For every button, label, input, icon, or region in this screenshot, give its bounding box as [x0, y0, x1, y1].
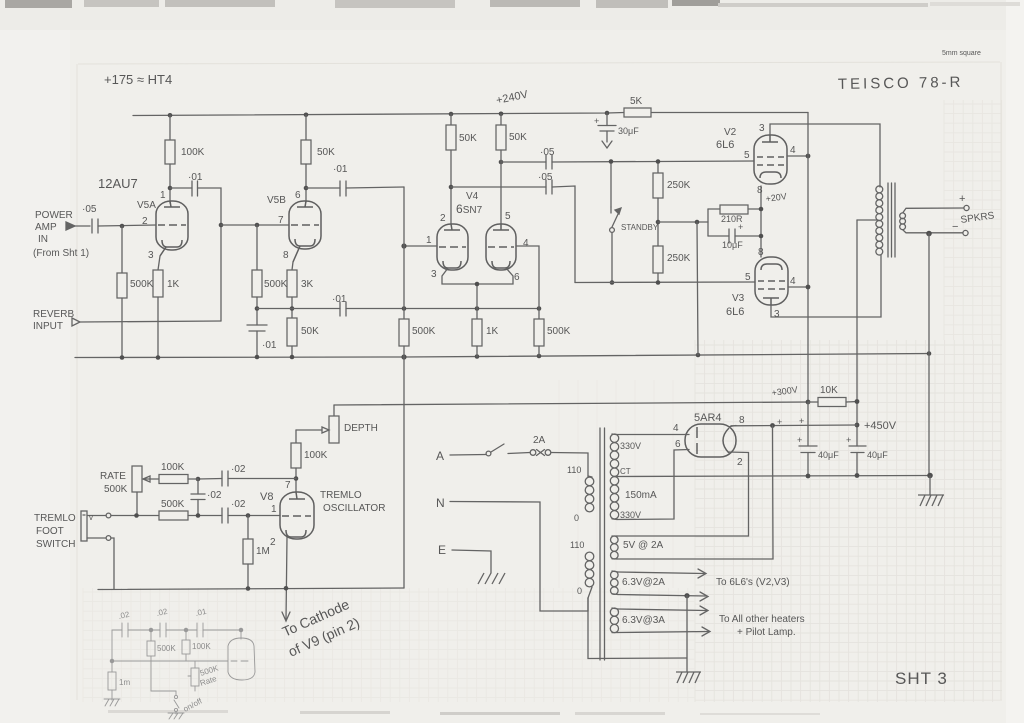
svg-text:DEPTH: DEPTH: [344, 423, 378, 434]
svg-text:40μF: 40μF: [867, 450, 888, 460]
svg-text:2: 2: [270, 537, 276, 548]
svg-text:STANDBY: STANDBY: [621, 223, 659, 232]
svg-text:TEISCO 78-R: TEISCO 78-R: [838, 74, 964, 93]
svg-text:V3: V3: [732, 293, 745, 304]
svg-text:2: 2: [440, 213, 446, 224]
svg-text:OSCILLATOR: OSCILLATOR: [323, 503, 385, 514]
svg-text:1M: 1M: [256, 546, 270, 557]
svg-text:2: 2: [737, 457, 743, 468]
svg-text:TREMLO: TREMLO: [34, 513, 76, 524]
svg-text:+: +: [799, 416, 804, 426]
svg-text:CT: CT: [620, 467, 631, 476]
svg-text:500K: 500K: [547, 326, 571, 337]
svg-text:6.3V@2A: 6.3V@2A: [622, 577, 665, 588]
svg-text:2A: 2A: [533, 435, 546, 446]
svg-text:3K: 3K: [301, 279, 314, 290]
svg-text:+175 ≈ HT4: +175 ≈ HT4: [104, 72, 172, 87]
svg-text:3: 3: [774, 309, 780, 320]
svg-text:50K: 50K: [459, 133, 477, 144]
svg-text:·05: ·05: [82, 204, 97, 215]
svg-text:+450V: +450V: [864, 420, 897, 432]
svg-text:POWER: POWER: [35, 210, 73, 221]
svg-text:V8: V8: [260, 491, 273, 503]
svg-text:A: A: [436, 449, 444, 463]
svg-text:+: +: [594, 116, 599, 126]
svg-text:(From Sht 1): (From Sht 1): [33, 248, 89, 259]
svg-text:4: 4: [523, 238, 529, 249]
svg-text:8: 8: [758, 247, 764, 258]
svg-text:330V: 330V: [620, 510, 641, 520]
svg-text:30μF: 30μF: [618, 126, 639, 136]
svg-text:6: 6: [295, 190, 301, 201]
svg-text:·01: ·01: [188, 172, 203, 183]
svg-text:V4: V4: [466, 191, 479, 202]
svg-text:330V: 330V: [620, 441, 641, 451]
svg-text:+ Pilot Lamp.: + Pilot Lamp.: [737, 627, 796, 638]
svg-text:100K: 100K: [161, 462, 185, 473]
svg-text:To All other heaters: To All other heaters: [719, 614, 805, 625]
svg-text:1m: 1m: [119, 678, 130, 687]
svg-text:5K: 5K: [630, 96, 643, 107]
svg-text:3: 3: [431, 269, 437, 280]
svg-text:5V @ 2A: 5V @ 2A: [623, 540, 664, 551]
svg-text:v: v: [89, 513, 93, 522]
svg-text:1K: 1K: [167, 279, 180, 290]
svg-text:1: 1: [160, 190, 166, 201]
svg-text:4: 4: [673, 423, 679, 434]
svg-text:IN: IN: [38, 234, 48, 245]
svg-text:V5A: V5A: [137, 200, 156, 211]
svg-text:5AR4: 5AR4: [694, 412, 722, 424]
svg-text:500K: 500K: [157, 644, 176, 653]
svg-text:100K: 100K: [304, 450, 328, 461]
svg-text:6.3V@3A: 6.3V@3A: [622, 615, 665, 626]
svg-text:5: 5: [505, 211, 511, 222]
svg-text:10μF: 10μF: [722, 240, 743, 250]
svg-text:500K: 500K: [161, 499, 185, 510]
svg-text:SWITCH: SWITCH: [36, 539, 75, 550]
svg-text:110: 110: [567, 465, 581, 475]
svg-text:40μF: 40μF: [818, 450, 839, 460]
svg-text:100K: 100K: [181, 147, 205, 158]
svg-text:·05: ·05: [538, 172, 553, 183]
svg-text:250K: 250K: [667, 180, 691, 191]
svg-text:+: +: [846, 435, 851, 445]
svg-text:500K: 500K: [130, 279, 154, 290]
svg-text:5: 5: [745, 272, 751, 283]
svg-text:5mm square: 5mm square: [942, 50, 981, 57]
svg-text:50K: 50K: [509, 132, 527, 143]
svg-text:RATE: RATE: [100, 471, 126, 482]
svg-text:500K: 500K: [104, 484, 128, 495]
svg-text:·01: ·01: [262, 340, 277, 351]
svg-text:+: +: [738, 222, 743, 232]
svg-text:4: 4: [790, 145, 796, 156]
svg-text:SHT 3: SHT 3: [895, 669, 948, 688]
svg-text:500K: 500K: [264, 279, 288, 290]
svg-text:50K: 50K: [301, 326, 319, 337]
svg-text:8: 8: [757, 185, 763, 196]
svg-text:100K: 100K: [192, 642, 211, 651]
svg-text:1: 1: [426, 235, 432, 246]
svg-text:50K: 50K: [317, 147, 335, 158]
svg-text:8: 8: [739, 415, 745, 426]
svg-text:INPUT: INPUT: [33, 321, 63, 332]
svg-text:V2: V2: [724, 127, 737, 138]
svg-text:·02: ·02: [231, 499, 246, 510]
svg-text:−: −: [952, 221, 958, 233]
svg-text:REVERB: REVERB: [33, 309, 74, 320]
svg-text:·02: ·02: [207, 490, 222, 501]
svg-text:TREMLO: TREMLO: [320, 490, 362, 501]
svg-text:250K: 250K: [667, 253, 691, 264]
svg-text:1: 1: [271, 504, 277, 515]
svg-text:8: 8: [283, 250, 289, 261]
svg-text:V5B: V5B: [267, 195, 286, 206]
svg-text:+: +: [797, 435, 802, 445]
svg-text:3: 3: [759, 123, 765, 134]
svg-text:·01: ·01: [332, 294, 347, 305]
svg-text:4: 4: [790, 276, 796, 287]
svg-text:110: 110: [570, 540, 584, 550]
svg-text:150mA: 150mA: [625, 490, 657, 501]
svg-text:To 6L6's (V2,V3): To 6L6's (V2,V3): [716, 577, 790, 588]
svg-text:AMP: AMP: [35, 222, 57, 233]
svg-text:·05: ·05: [540, 147, 555, 158]
svg-text:6L6: 6L6: [726, 306, 744, 318]
svg-text:E: E: [438, 543, 446, 557]
svg-text:6: 6: [514, 272, 520, 283]
svg-text:6L6: 6L6: [716, 139, 734, 151]
svg-text:7: 7: [285, 480, 291, 491]
svg-text:N: N: [436, 496, 445, 510]
svg-text:500K: 500K: [412, 326, 436, 337]
svg-text:FOOT: FOOT: [36, 526, 64, 537]
svg-text:0: 0: [574, 513, 579, 523]
svg-text:·02: ·02: [231, 464, 246, 475]
svg-text:·01: ·01: [333, 164, 348, 175]
svg-text:+: +: [959, 193, 965, 205]
svg-text:3: 3: [148, 250, 154, 261]
svg-text:10K: 10K: [820, 385, 838, 396]
svg-text:5: 5: [744, 150, 750, 161]
svg-text:6: 6: [675, 439, 681, 450]
svg-text:1K: 1K: [486, 326, 499, 337]
svg-text:0: 0: [577, 586, 582, 596]
svg-text:6SN7: 6SN7: [456, 202, 483, 216]
svg-text:12AU7: 12AU7: [98, 176, 138, 191]
